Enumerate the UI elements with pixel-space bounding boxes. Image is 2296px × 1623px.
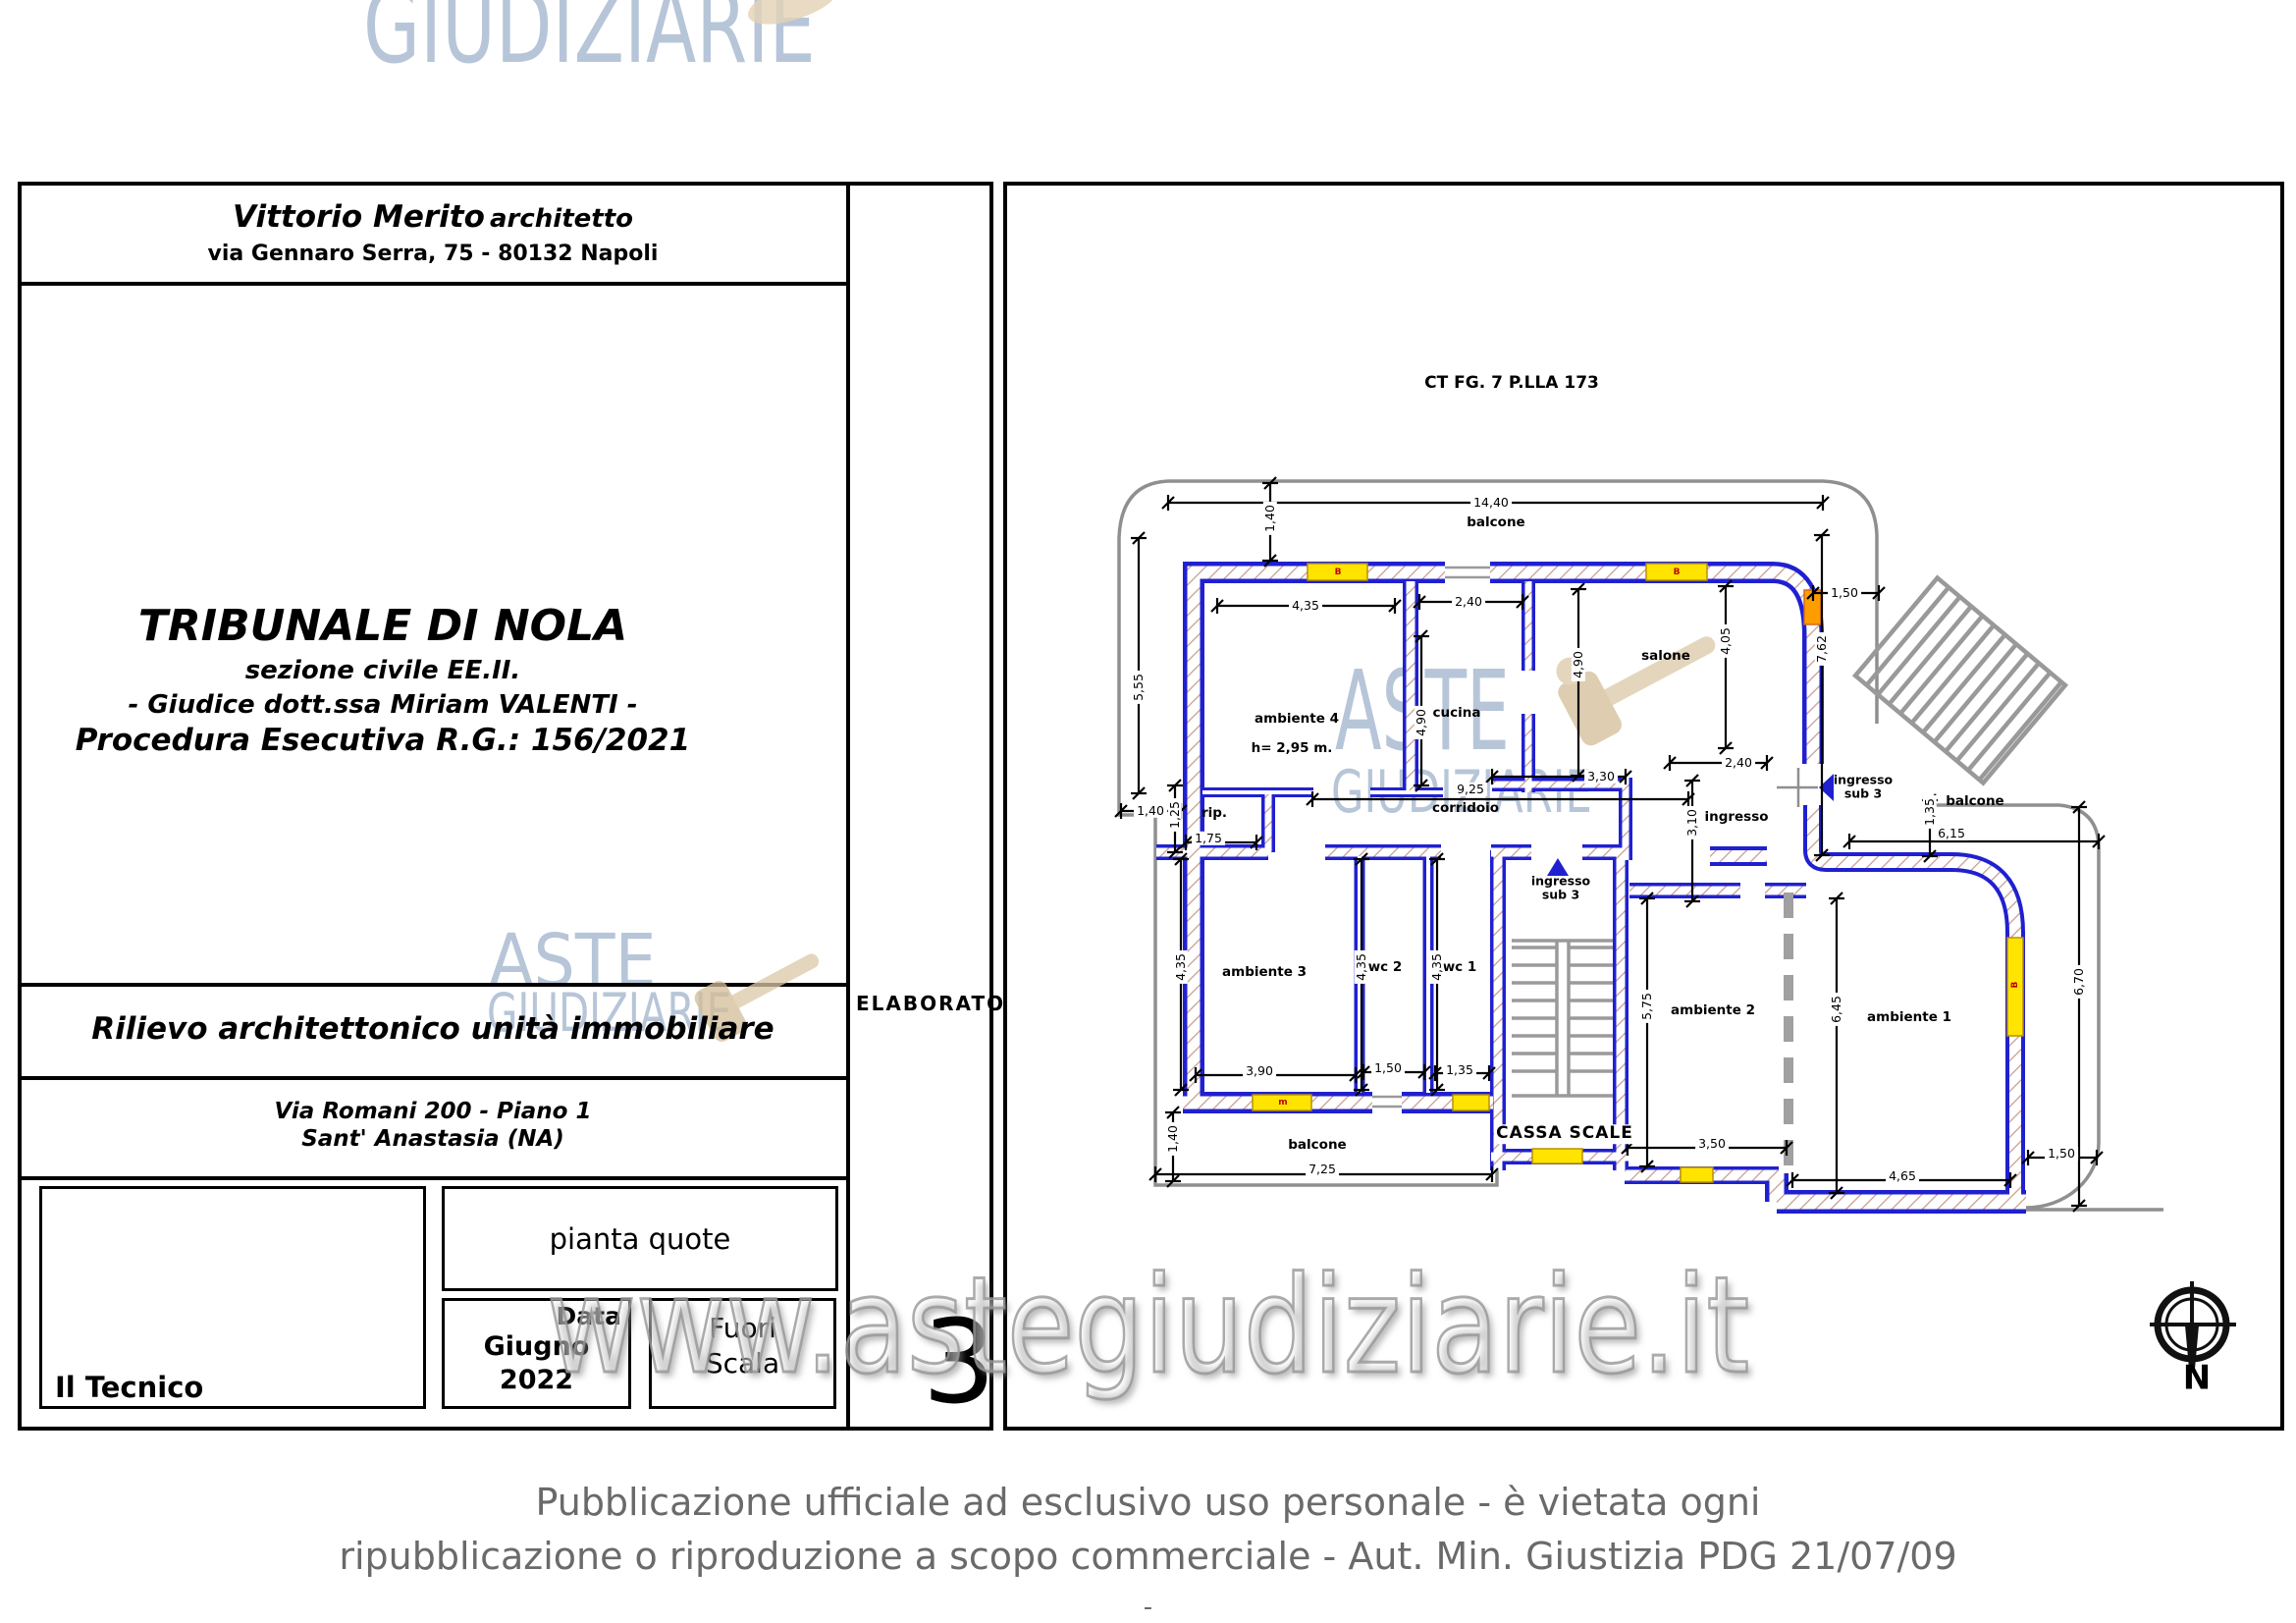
plan-label: 3,30 <box>1584 770 1618 784</box>
plan-label: 3,90 <box>1243 1064 1276 1078</box>
plan-label: 1,50 <box>1828 586 1861 600</box>
tecnico-label: Il Tecnico <box>55 1371 203 1404</box>
watermark-site-url: www.astegiudiziarie.it <box>207 1249 2090 1404</box>
court-title: TRIBUNALE DI NOLA <box>18 601 748 651</box>
plan-label: 1,50 <box>2045 1147 2078 1161</box>
plan-label: ingresso sub 3 <box>1834 774 1893 802</box>
plan-label: 14,40 <box>1470 496 1512 510</box>
plan-label: 5,75 <box>1640 990 1654 1023</box>
plan-label: balcone <box>1467 515 1524 531</box>
plan-label: 6,70 <box>2072 965 2086 999</box>
plan-label: ingresso sub 3 <box>1531 875 1590 903</box>
plan-label: CASSA SCALE <box>1494 1124 1635 1144</box>
plan-label: ambiente 2 <box>1671 1003 1755 1019</box>
plan-label: 3,50 <box>1695 1137 1729 1151</box>
plan-label: 7,62 <box>1815 632 1829 666</box>
plan-label: ambiente 1 <box>1867 1010 1951 1026</box>
court-procedure: Procedura Esecutiva R.G.: 156/2021 <box>18 723 748 758</box>
plan-label: 4,65 <box>1886 1169 1919 1183</box>
plan-label: 3,10 <box>1685 806 1699 839</box>
property-address-2: Sant' Anastasia (NA) <box>18 1126 848 1152</box>
plan-label: 2,40 <box>1722 756 1755 770</box>
property-address-1: Via Romani 200 - Piano 1 <box>18 1099 848 1124</box>
plan-label: cucina <box>1433 706 1481 722</box>
plan-label: 6,45 <box>1830 993 1843 1026</box>
plan-label: 4,90 <box>1415 706 1428 739</box>
plan-label: 1,40 <box>1263 502 1277 535</box>
elaborato-label: ELABORATO <box>856 992 1005 1015</box>
plan-label: ambiente 3 <box>1222 965 1307 981</box>
footer-line-2: ripubblicazione o riproduzione a scopo c… <box>0 1535 2296 1578</box>
plan-label: h= 2,95 m. <box>1252 741 1333 757</box>
plan-label: 4,35 <box>1289 599 1322 613</box>
plan-label: 4,35 <box>1355 950 1368 984</box>
plan-label: CT FG. 7 P.LLA 173 <box>1424 374 1599 394</box>
plan-label: 7,25 <box>1306 1163 1339 1176</box>
plan-label: 1,35 <box>1443 1063 1476 1077</box>
drawing-subject: Rilievo architettonico unità immobiliare <box>18 1011 848 1047</box>
document-page: GIUDIZIARIE ASTE GIUDIZIARIE ASTE GIUDIZ… <box>0 0 2296 1623</box>
plan-label: 6,15 <box>1935 827 1968 840</box>
plan-label: B <box>1335 568 1342 577</box>
architect-name: Vittorio Merito <box>233 199 485 235</box>
plan-label: m <box>1278 1098 1287 1108</box>
plan-label: ingresso <box>1704 810 1768 826</box>
architect-role: architetto <box>490 204 633 234</box>
plan-label: balcone <box>1946 794 2003 810</box>
architect-address: via Gennaro Serra, 75 - 80132 Napoli <box>18 242 848 266</box>
court-section: sezione civile EE.II. <box>18 656 748 685</box>
plan-label: wc 1 <box>1443 960 1477 976</box>
plan-label: 1,35 <box>1923 795 1937 829</box>
plan-label: 1,75 <box>1192 832 1225 845</box>
plan-label: 1,40 <box>1134 804 1167 818</box>
plan-label: salone <box>1641 649 1690 665</box>
plan-label: 2,40 <box>1452 595 1485 609</box>
plan-label: 5,55 <box>1132 671 1146 704</box>
plan-label: ambiente 4 <box>1255 712 1339 728</box>
plan-label: 4,35 <box>1430 950 1444 984</box>
court-judge: - Giudice dott.ssa Miriam VALENTI - <box>18 690 748 720</box>
plan-label: wc 2 <box>1368 960 1403 976</box>
footer-line-3: - <box>0 1593 2296 1622</box>
plan-label: N <box>2183 1359 2211 1397</box>
plan-label: 4,05 <box>1719 624 1733 658</box>
plan-label: B <box>2010 982 2020 989</box>
plan-label: corridoio <box>1432 801 1499 817</box>
plan-label: 1,50 <box>1371 1061 1405 1075</box>
plan-label: 1,25 <box>1168 798 1182 832</box>
footer-line-1: Pubblicazione ufficiale ad esclusivo uso… <box>0 1481 2296 1524</box>
plan-label: 4,90 <box>1572 648 1585 681</box>
plan-label: B <box>1674 568 1681 577</box>
architect-header: Vittorio Merito architetto <box>18 199 848 235</box>
plan-label: 1,40 <box>1166 1122 1180 1156</box>
plan-label: 9,25 <box>1454 783 1487 796</box>
plan-label: rip. <box>1201 806 1227 822</box>
plan-label: balcone <box>1288 1138 1346 1154</box>
plan-label: 4,35 <box>1174 950 1188 984</box>
